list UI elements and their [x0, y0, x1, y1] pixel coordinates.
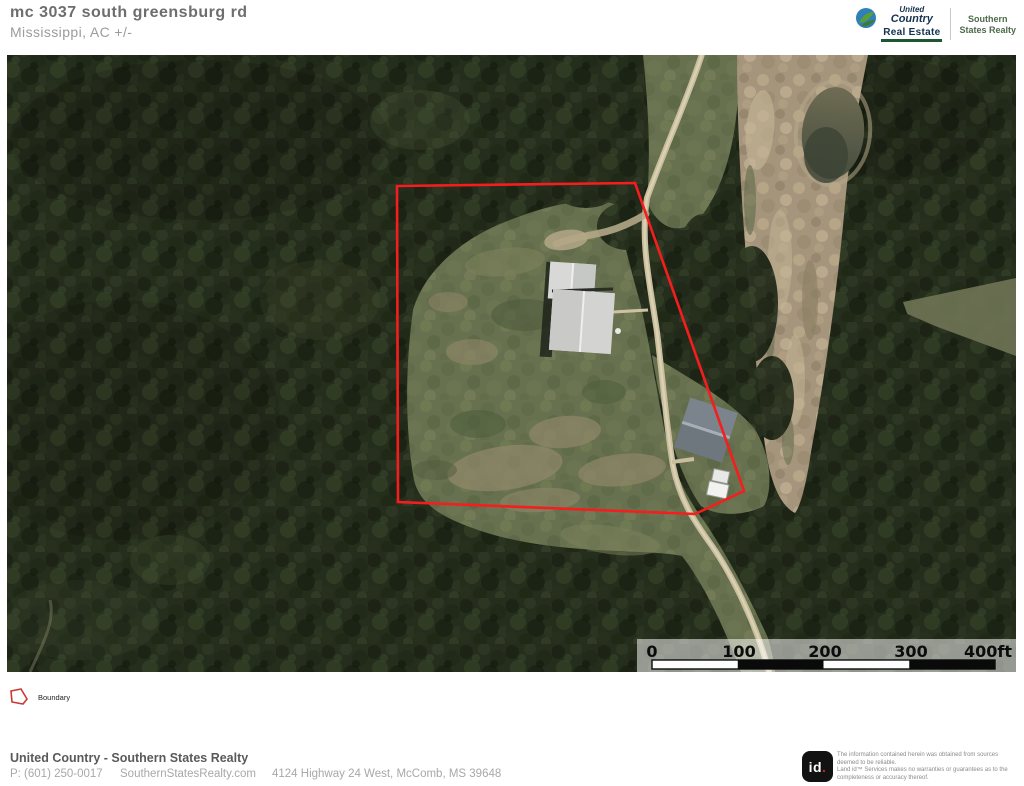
disclaimer-line1: The information contained herein was obt… — [837, 752, 1019, 767]
scale-bar: 0 100 200 300 400ft — [637, 639, 1016, 672]
aerial-map-canvas: 0 100 200 300 400ft — [7, 55, 1016, 672]
footer-phone: P: (601) 250-0017 — [10, 768, 103, 780]
office-name: Southern States Realty — [959, 14, 1016, 35]
boundary-legend-icon — [8, 687, 30, 707]
footer-address: 4124 Highway 24 West, McComb, MS 39648 — [272, 768, 501, 780]
disclaimer-text: The information contained herein was obt… — [837, 752, 1019, 782]
footer-website: SouthernStatesRealty.com — [120, 768, 256, 780]
globe-icon — [853, 6, 879, 32]
land-id-logo: id. — [802, 751, 833, 782]
page-title: mc 3037 south greensburg rd — [10, 4, 248, 22]
land-id-logo-text: id — [809, 759, 822, 775]
scale-tick-0: 0 — [646, 642, 657, 661]
boundary-legend-label: Boundary — [38, 693, 70, 702]
office-line2: States Realty — [959, 25, 1016, 35]
scale-tick-400ft: 400ft — [964, 642, 1012, 661]
scale-tick-200: 200 — [808, 642, 841, 661]
scale-tick-100: 100 — [722, 642, 755, 661]
land-id-logo-dot: . — [822, 759, 826, 775]
walkway — [613, 310, 648, 312]
aerial-map-image: 0 100 200 300 400ft — [7, 55, 1016, 672]
united-country-logo: United Country Real Estate — [853, 6, 942, 42]
brand-logo: United Country Real Estate Southern Stat… — [853, 6, 1016, 42]
footer-company-name: United Country - Southern States Realty — [10, 751, 248, 765]
scale-tick-300: 300 — [894, 642, 927, 661]
disclaimer-line2: Land id™ Services makes no warranties or… — [837, 767, 1019, 782]
office-line1: Southern — [968, 14, 1008, 24]
brand-divider — [950, 8, 951, 40]
country-label: Country — [891, 14, 933, 25]
united-country-wordmark: United Country Real Estate — [881, 6, 942, 42]
map-legend: Boundary — [8, 687, 70, 707]
real-estate-label: Real Estate — [881, 27, 942, 42]
map-report-page: mc 3037 south greensburg rd Mississippi,… — [0, 0, 1024, 786]
page-subtitle: Mississippi, AC +/- — [10, 24, 132, 40]
